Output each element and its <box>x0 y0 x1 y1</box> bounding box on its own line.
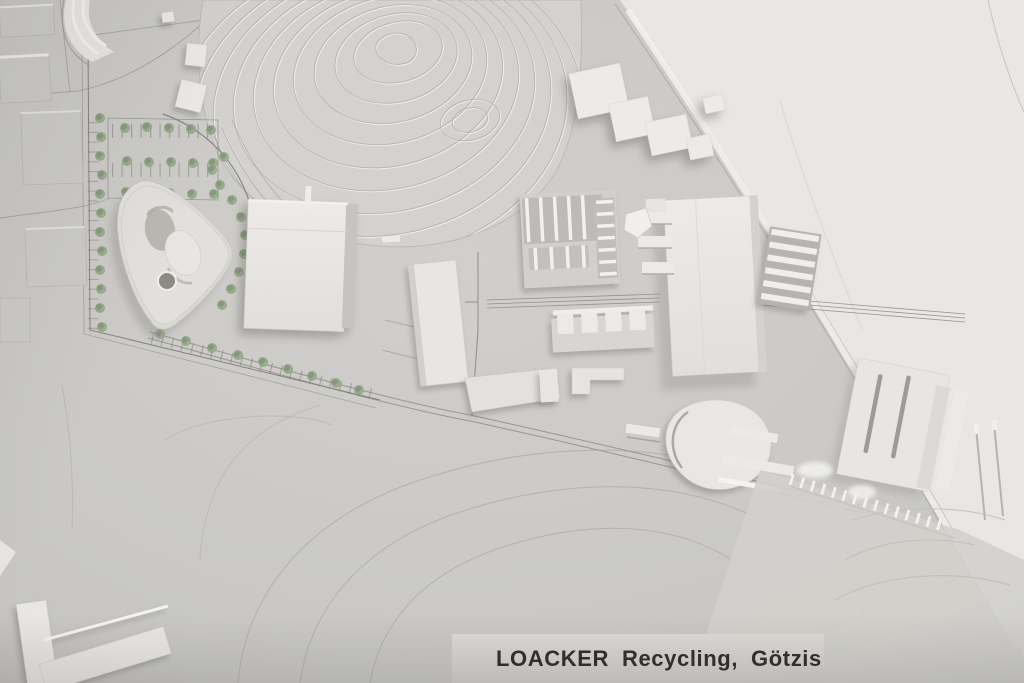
caption-category: Recycling, <box>622 646 738 671</box>
rectangular-hall <box>244 200 358 332</box>
model-scene <box>0 0 1024 683</box>
caption-text: LOACKERRecycling,Götzis <box>452 646 835 672</box>
architectural-model-photo: LOACKERRecycling,Götzis <box>0 0 1024 683</box>
rooftop-mast <box>304 186 311 210</box>
caption-location: Götzis <box>751 646 822 671</box>
round-skylight-opening <box>158 272 176 290</box>
retaining-wall <box>382 236 400 243</box>
caption-brand: LOACKER <box>496 646 609 671</box>
white-fluff <box>797 462 833 478</box>
white-fluff <box>848 485 876 499</box>
recycling-bunker-bays <box>520 190 621 289</box>
model-caption-label: LOACKERRecycling,Götzis <box>452 634 824 683</box>
low-bay-row <box>551 305 655 352</box>
